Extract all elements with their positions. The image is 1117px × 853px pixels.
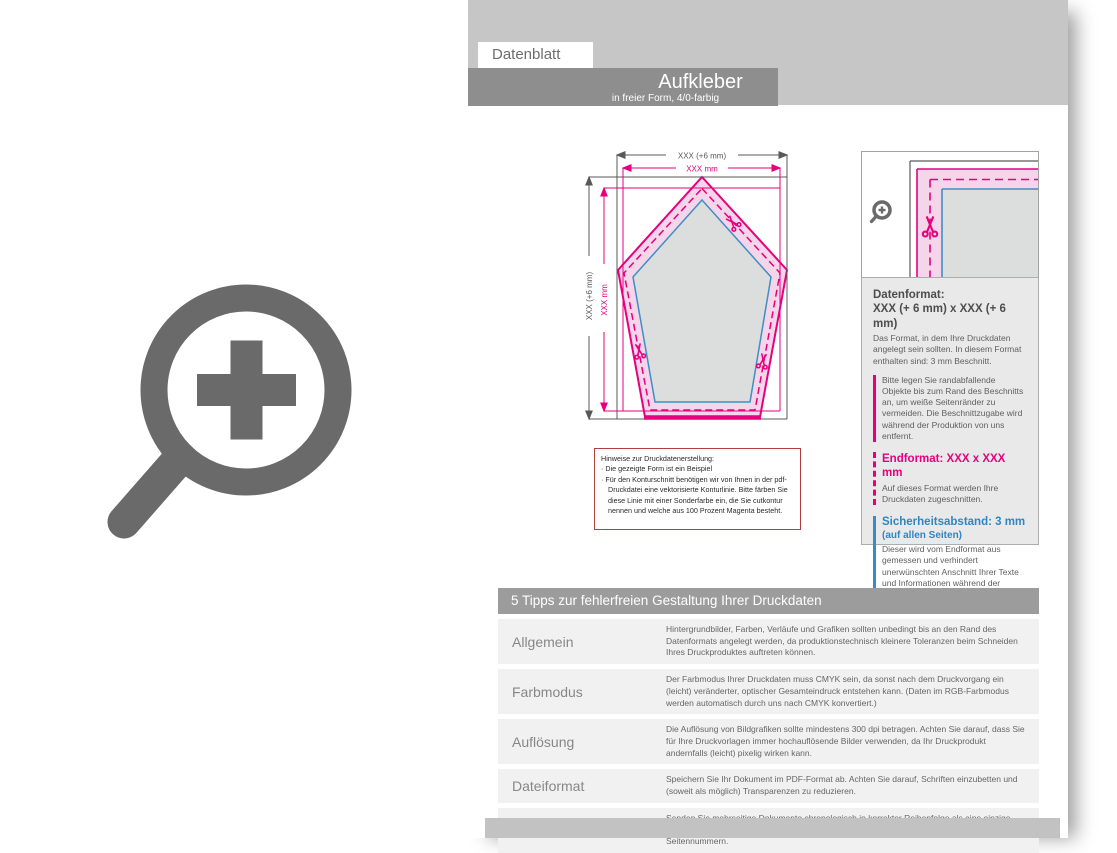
datenformat-body: Das Format, in dem Ihre Druckdaten angel… [873, 333, 1027, 367]
corner-detail-drawing [862, 152, 1038, 277]
datenblatt-tab: Datenblatt [478, 42, 593, 68]
endformat-body: Auf dieses Format werden Ihre Druckdaten… [882, 483, 1027, 505]
datenblatt-label: Datenblatt [492, 46, 560, 63]
zoom-plus-icon [100, 272, 365, 562]
row-label: Dateiformat [498, 769, 666, 802]
row-text: Der Farbmodus Ihrer Druckdaten muss CMYK… [666, 669, 1039, 714]
tips-table-header: 5 Tipps zur fehlerfreien Gestaltung Ihre… [498, 588, 1039, 614]
note-item: · Für den Konturschnitt benötigen wir vo… [601, 475, 794, 517]
endformat-block: Endformat: XXX x XXX mm Auf dieses Forma… [873, 452, 1027, 505]
note-title: Hinweise zur Druckdatenerstellung: [601, 454, 794, 464]
title-box: Aufkleber in freier Form, 4/0-farbig [468, 68, 778, 106]
dim-height-final-label: XXX mm [600, 284, 609, 316]
footer-bar [485, 818, 1060, 838]
row-label: Farbmodus [498, 669, 666, 714]
note-item: · Die gezeigte Form ist ein Beispiel [601, 464, 794, 474]
endformat-title: Endformat: XXX x XXX mm [882, 452, 1027, 481]
row-text: Hintergrundbilder, Farben, Verläufe und … [666, 619, 1039, 664]
page-subtitle: in freier Form, 4/0-farbig [543, 93, 788, 104]
dim-width-total-label: XXX (+6 mm) [678, 152, 727, 161]
bleed-note: Bitte legen Sie randabfallende Objekte b… [873, 375, 1027, 442]
table-row: Auflösung Die Auflösung von Bildgrafiken… [498, 719, 1039, 764]
row-label: Allgemein [498, 619, 666, 664]
row-label: Auflösung [498, 719, 666, 764]
magnifier-plus-icon [872, 202, 891, 222]
format-info-panel: Datenformat: XXX (+ 6 mm) x XXX (+ 6 mm)… [861, 277, 1039, 545]
table-row: Farbmodus Der Farbmodus Ihrer Druckdaten… [498, 669, 1039, 714]
sicherheitsabstand-title: Sicherheitsabstand: 3 mm [882, 516, 1027, 530]
datasheet-page: Datenblatt Aufkleber in freier Form, 4/0… [468, 0, 1068, 838]
table-row: Dateiformat Speichern Sie Ihr Dokument i… [498, 769, 1039, 802]
table-row: Allgemein Hintergrundbilder, Farben, Ver… [498, 619, 1039, 664]
diecut-diagram: XXX (+6 mm) XXX mm XXX (+6 mm) XXX mm [560, 140, 860, 440]
datenformat-title: Datenformat: [873, 288, 1027, 302]
dim-width-final-label: XXX mm [686, 164, 718, 173]
row-text: Speichern Sie Ihr Dokument im PDF-Format… [666, 769, 1039, 802]
row-text: Die Auflösung von Bildgrafiken sollte mi… [666, 719, 1039, 764]
sicherheitsabstand-sub: (auf allen Seiten) [882, 530, 1027, 542]
tips-table: 5 Tipps zur fehlerfreien Gestaltung Ihre… [498, 588, 1039, 853]
header-band: Datenblatt Aufkleber in freier Form, 4/0… [468, 0, 1068, 105]
print-data-note: Hinweise zur Druckdatenerstellung: · Die… [594, 448, 801, 530]
datenformat-value: XXX (+ 6 mm) x XXX (+ 6 mm) [873, 302, 1027, 331]
corner-detail-inset [861, 151, 1039, 278]
dim-height-total-label: XXX (+6 mm) [585, 272, 594, 321]
page-title: Aufkleber [583, 71, 818, 94]
